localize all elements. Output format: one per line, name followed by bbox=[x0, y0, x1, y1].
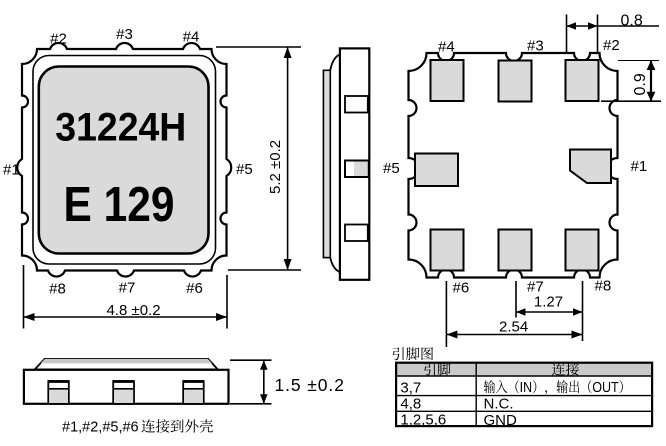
svg-text:31224H: 31224H bbox=[55, 106, 186, 150]
svg-text:GND: GND bbox=[484, 412, 518, 429]
svg-text:0.8: 0.8 bbox=[621, 13, 643, 30]
svg-text:#1,#2,#5,#6: #1,#2,#5,#6 bbox=[62, 420, 139, 436]
svg-text:#2: #2 bbox=[603, 37, 620, 54]
svg-text:#5: #5 bbox=[236, 161, 253, 178]
svg-text:#1: #1 bbox=[3, 162, 20, 179]
svg-text:N.C.: N.C. bbox=[484, 395, 514, 412]
svg-text:#5: #5 bbox=[383, 160, 400, 177]
svg-text:4.8 ±0.2: 4.8 ±0.2 bbox=[106, 302, 160, 319]
svg-text:#8: #8 bbox=[595, 278, 612, 295]
svg-text:#4: #4 bbox=[183, 29, 200, 46]
svg-text:4,8: 4,8 bbox=[400, 395, 421, 412]
svg-text:1,2,5,6: 1,2,5,6 bbox=[400, 411, 446, 428]
svg-text:E 129: E 129 bbox=[64, 178, 175, 232]
svg-text:5.2 ±0.2: 5.2 ±0.2 bbox=[267, 140, 284, 194]
svg-text:#2: #2 bbox=[50, 31, 67, 48]
svg-text:#3: #3 bbox=[527, 38, 544, 55]
svg-text:#6: #6 bbox=[453, 280, 470, 297]
svg-text:#1: #1 bbox=[631, 158, 648, 175]
svg-text:1.27: 1.27 bbox=[534, 294, 563, 311]
svg-text:#4: #4 bbox=[438, 39, 455, 56]
svg-text:0.9: 0.9 bbox=[632, 73, 649, 95]
svg-text:#8: #8 bbox=[49, 281, 66, 298]
svg-text:#7: #7 bbox=[119, 280, 136, 297]
svg-text:#3: #3 bbox=[116, 26, 133, 43]
svg-text:3,7: 3,7 bbox=[400, 380, 421, 397]
svg-text:2.54: 2.54 bbox=[499, 319, 528, 336]
svg-text:1.5 ±0.2: 1.5 ±0.2 bbox=[275, 375, 345, 395]
svg-text:#6: #6 bbox=[186, 280, 203, 297]
